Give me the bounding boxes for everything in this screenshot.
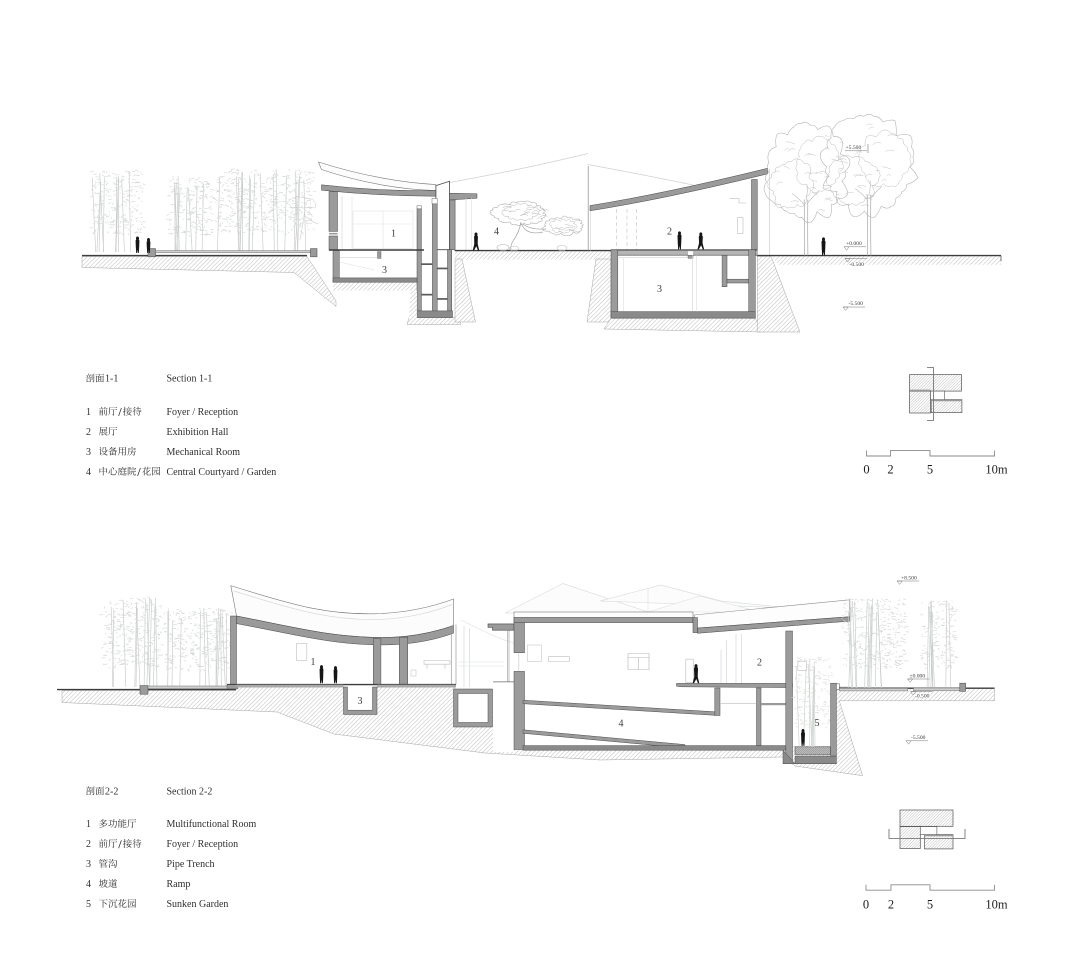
svg-text:0: 0 — [863, 463, 869, 477]
svg-text:2: 2 — [667, 227, 672, 238]
svg-text:1-1: 1-1 — [105, 374, 118, 385]
svg-text:3: 3 — [358, 696, 363, 707]
svg-text:5: 5 — [927, 898, 933, 912]
svg-text:5: 5 — [927, 463, 933, 477]
svg-text:1: 1 — [391, 229, 396, 240]
svg-text:1: 1 — [86, 407, 91, 418]
svg-text:Central Courtyard / Garden: Central Courtyard / Garden — [167, 467, 277, 478]
svg-text:Foyer / Reception: Foyer / Reception — [167, 407, 239, 418]
svg-text:4: 4 — [86, 879, 91, 890]
svg-text:Foyer / Reception: Foyer / Reception — [167, 839, 239, 850]
svg-text:±0.000: ±0.000 — [910, 673, 926, 679]
svg-text:-0.500: -0.500 — [915, 694, 930, 700]
svg-text:4: 4 — [86, 467, 91, 478]
svg-text:3: 3 — [86, 447, 91, 458]
svg-text:Section 2-2: Section 2-2 — [167, 786, 213, 797]
svg-text:2: 2 — [86, 427, 91, 438]
svg-text:+5.500: +5.500 — [846, 145, 862, 151]
svg-text:Exhibition Hall: Exhibition Hall — [167, 427, 229, 438]
svg-text:2-2: 2-2 — [105, 786, 118, 797]
svg-text:-0.500: -0.500 — [850, 262, 865, 268]
svg-text:1: 1 — [311, 657, 316, 668]
svg-text:3: 3 — [86, 859, 91, 870]
svg-text:3: 3 — [382, 265, 387, 276]
svg-text:10m: 10m — [985, 463, 1008, 477]
svg-text:2: 2 — [86, 839, 91, 850]
svg-text:2: 2 — [888, 898, 894, 912]
svg-text:+8.500: +8.500 — [901, 575, 917, 581]
svg-text:Section 1-1: Section 1-1 — [167, 374, 213, 385]
svg-text:3: 3 — [657, 284, 662, 295]
svg-text:Mechanical Room: Mechanical Room — [167, 447, 241, 458]
svg-text:-5.500: -5.500 — [911, 735, 926, 741]
svg-text:2: 2 — [757, 658, 762, 669]
svg-text:10m: 10m — [985, 898, 1008, 912]
svg-text:5: 5 — [815, 718, 820, 729]
svg-text:Sunken Garden: Sunken Garden — [167, 899, 229, 910]
svg-text:-5.500: -5.500 — [849, 301, 864, 307]
svg-text:Ramp: Ramp — [167, 879, 191, 890]
svg-text:4: 4 — [619, 719, 624, 730]
svg-text:2: 2 — [887, 463, 893, 477]
svg-text:1: 1 — [86, 819, 91, 830]
svg-text:Pipe Trench: Pipe Trench — [167, 859, 215, 870]
svg-text:4: 4 — [494, 227, 499, 238]
svg-text:0: 0 — [863, 898, 869, 912]
svg-text:5: 5 — [86, 899, 91, 910]
svg-text:Multifunctional Room: Multifunctional Room — [167, 819, 257, 830]
svg-text:+0.000: +0.000 — [846, 241, 862, 247]
